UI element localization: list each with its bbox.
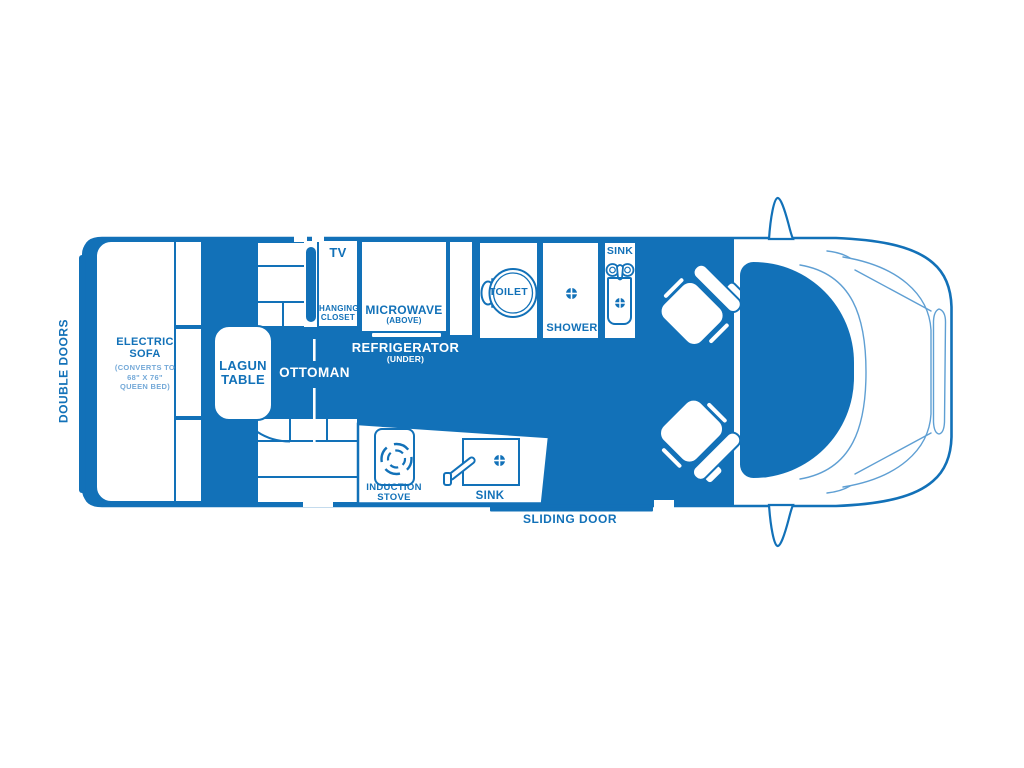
tv-cabinet: TV HANGING CLOSET	[317, 239, 359, 328]
shower-room: SHOWER	[541, 241, 600, 340]
bath-sink-basin	[607, 277, 632, 325]
van-floor-plan: ELECTRIC SOFA (CONVERTS TO 68" X 76" QUE…	[0, 0, 1024, 768]
lower-cabinets	[257, 418, 358, 503]
drain-icon	[615, 298, 625, 308]
shower-label: SHOWER	[537, 322, 607, 334]
refrigerator-handle	[371, 332, 442, 338]
pantry-cabinet	[448, 240, 474, 337]
tv-label: TV	[319, 246, 357, 260]
hanging-closet-label: HANGING CLOSET	[319, 305, 357, 322]
door-frame-gap	[654, 500, 674, 508]
drain-icon	[566, 288, 577, 299]
floor-divider-line	[313, 388, 316, 450]
wall-opening	[303, 501, 333, 507]
induction-stove	[374, 428, 415, 486]
kitchen-faucet-base	[443, 472, 452, 486]
induction-burner-icon	[376, 430, 417, 488]
rear-door-panel	[79, 255, 95, 493]
sliding-door-panel	[490, 503, 653, 512]
floor-divider-line	[313, 339, 316, 361]
refrigerator-label: REFRIGERATOR (UNDER)	[328, 341, 483, 365]
wall-opening	[294, 236, 307, 242]
counter-pill	[306, 247, 316, 322]
kitchen-sink-label: SINK	[455, 490, 525, 503]
sofa-cushion	[174, 240, 203, 327]
wall-opening	[312, 236, 324, 242]
induction-stove-label: INDUCTION STOVE	[355, 483, 433, 502]
toilet-label: TOILET	[480, 287, 537, 299]
upper-cabinets	[257, 242, 305, 327]
bath-sink-cabinet: SINK	[603, 241, 637, 340]
sofa-cushion	[174, 418, 203, 503]
electric-sofa-label: ELECTRIC SOFA (CONVERTS TO 68" X 76" QUE…	[99, 336, 191, 391]
sliding-door-label: SLIDING DOOR	[500, 513, 640, 526]
toilet-room: TOILET	[478, 241, 539, 340]
ottoman-label: OTTOMAN	[252, 366, 377, 381]
drain-icon	[494, 455, 505, 466]
bath-sink-label: SINK	[605, 246, 635, 258]
double-doors-label: DOUBLE DOORS	[57, 319, 70, 423]
microwave-cabinet: MICROWAVE (ABOVE)	[360, 240, 448, 333]
